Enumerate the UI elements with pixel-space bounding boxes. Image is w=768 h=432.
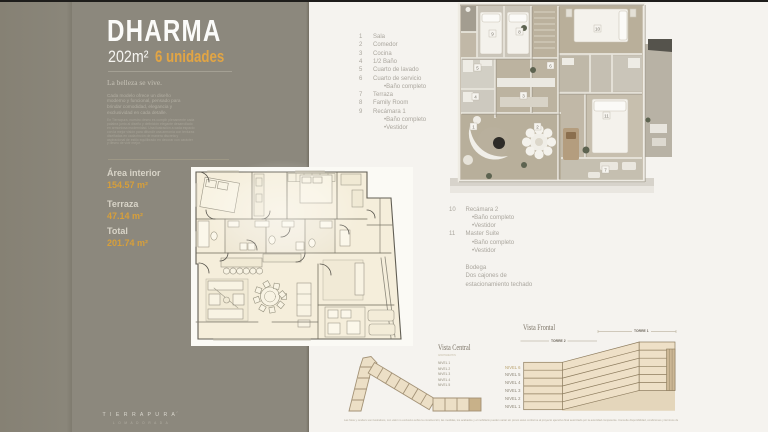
svg-text:10: 10 <box>595 26 601 31</box>
svg-text:11: 11 <box>604 113 609 118</box>
